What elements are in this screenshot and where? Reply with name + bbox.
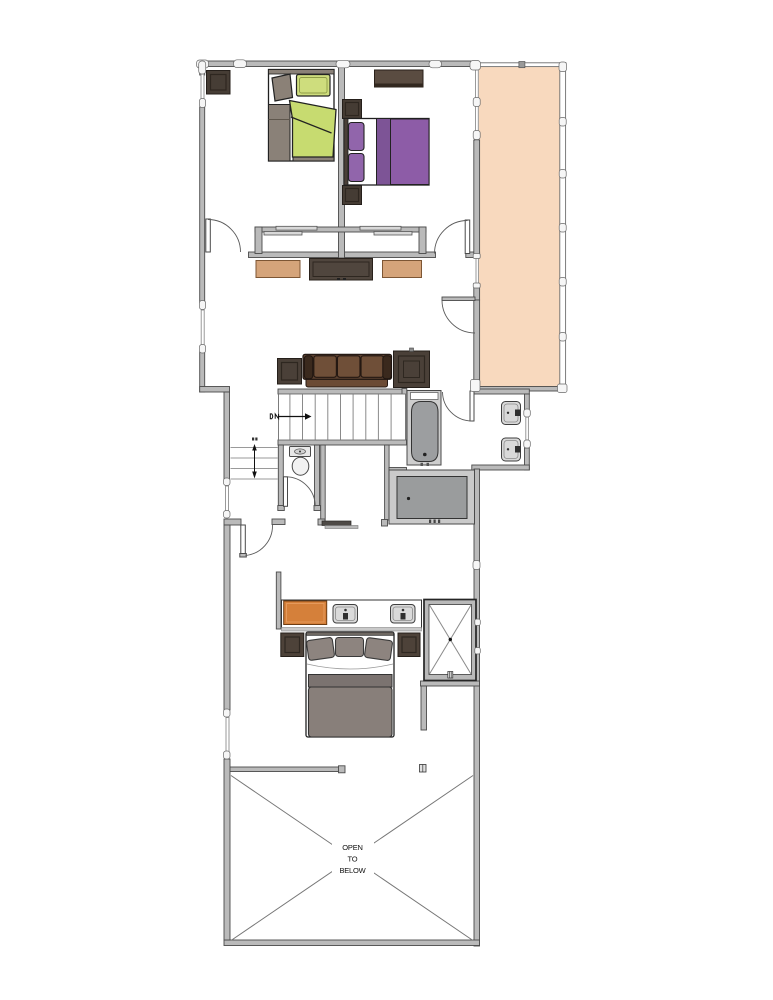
svg-text:BELOW: BELOW (339, 866, 366, 875)
svg-text:TO: TO (348, 855, 358, 864)
svg-text:OPEN: OPEN (342, 843, 362, 852)
